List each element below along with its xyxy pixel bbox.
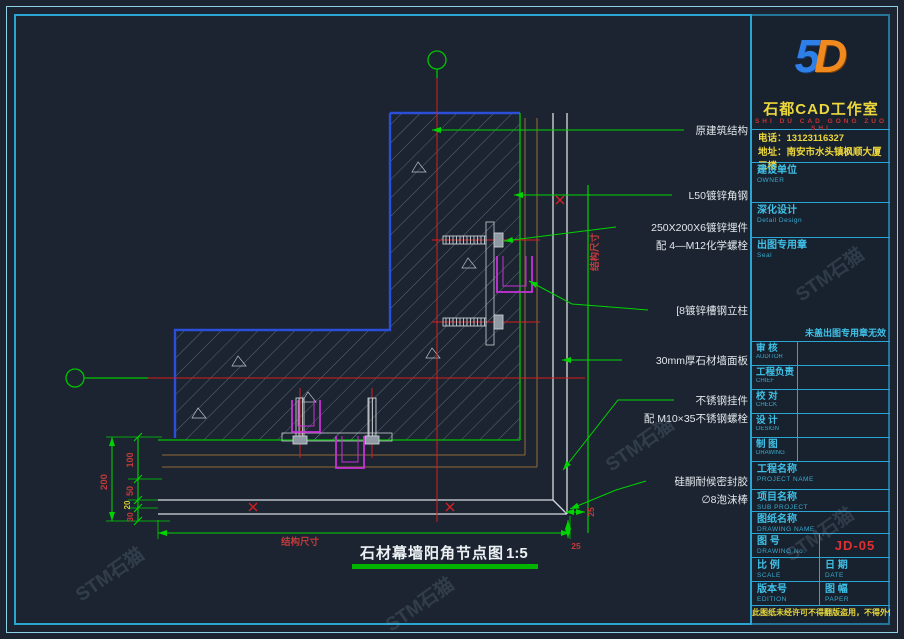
owner-label: 建设单位	[757, 165, 797, 176]
title-underline	[352, 564, 538, 569]
drawing-scale: 1:5	[506, 545, 528, 562]
phone-line: 电话：13123116327	[758, 132, 890, 146]
dim-note-horizontal: 结构尺寸	[280, 536, 320, 548]
structure-hatch-region	[175, 113, 520, 440]
edition-label: 版本号	[757, 584, 787, 595]
annotation-labels: 原建筑结构 L50镀锌角钢 250X200X6镀锌埋件 配 4—M12化学螺栓 …	[644, 124, 749, 506]
drawing-title-group: 石材幕墙阳角节点图 1:5	[352, 544, 538, 569]
label-original-structure: 原建筑结构	[696, 124, 749, 137]
drawing-name-section: 图纸名称DRAWING NAME	[752, 512, 890, 534]
drawing-canvas: 200 100 50 20 30 25 25 结构尺寸 结构尺寸 原建筑结构 L…	[0, 0, 750, 639]
subproject-section: 项目名称SUB PROJECT	[752, 490, 890, 512]
project-sub: PROJECT NAME	[757, 475, 814, 485]
dim-50: 50	[125, 486, 135, 496]
seal-sub: Seal	[757, 251, 807, 261]
check-sub: CHECK	[756, 402, 797, 408]
label-foam-rod: ∅8泡沫棒	[702, 493, 749, 506]
dim-100: 100	[125, 452, 135, 467]
design-label: 深化设计	[757, 205, 797, 216]
dim-corner-a: 25	[586, 507, 596, 517]
design-person-label: 设 计	[756, 416, 797, 426]
title-block: 5D 石都CAD工作室 SHI DU CAD GONG ZUO SHI 电话：1…	[750, 14, 890, 625]
drawing-name-label: 图纸名称	[757, 514, 797, 525]
cad-drawing-window: 200 100 50 20 30 25 25 结构尺寸 结构尺寸 原建筑结构 L…	[0, 0, 904, 639]
label-angle-steel: L50镀锌角钢	[688, 189, 748, 202]
drawing-no-sub: DRAWING No.	[757, 547, 806, 557]
paper-sub: PAPER	[825, 595, 849, 605]
edition-paper-row: 版本号EDITION 图 幅PAPER	[752, 582, 890, 606]
paper-label: 图 幅	[825, 584, 848, 595]
studio-name: 石都CAD工作室	[752, 98, 890, 118]
drawing-number-value: JD-05	[820, 538, 890, 553]
chief-sub: CHIEF	[756, 378, 797, 384]
design-person-sub: DESIGN	[756, 426, 797, 432]
label-embed-plate: 250X200X6镀锌埋件	[651, 221, 748, 234]
scale-date-row: 比 例SCALE 日 期DATE	[752, 558, 890, 582]
chief-label: 工程负责	[756, 368, 797, 378]
logo-section: 5D	[752, 14, 890, 98]
table-row: 工程负责CHIEF	[752, 366, 890, 390]
table-row: 校 对CHECK	[752, 390, 890, 414]
label-stone-panel: 30mm厚石材墙面板	[656, 354, 749, 367]
scale-label: 比 例	[757, 560, 780, 571]
project-label: 工程名称	[757, 464, 797, 475]
owner-section: 建设单位OWNER	[752, 163, 890, 203]
studio-logo: 5D	[795, 33, 848, 79]
date-sub: DATE	[825, 571, 848, 581]
table-row: 审 核AUDITOR	[752, 342, 890, 366]
studio-pinyin: SHI DU CAD GONG ZUO SHI	[752, 118, 890, 130]
dim-note-vertical: 结构尺寸	[589, 233, 601, 273]
drafter-label: 制 图	[756, 440, 797, 450]
auditor-sub: AUDITOR	[756, 354, 797, 360]
label-sealant: 硅酮耐候密封胶	[675, 475, 749, 488]
drafter-sub: DRAWING	[756, 450, 797, 456]
edition-sub: EDITION	[757, 595, 787, 605]
drawing-no-label: 图 号	[757, 536, 780, 547]
contact-section: 电话：13123116327 地址：南安市水头镇枫顺大厦三楼	[752, 130, 890, 163]
dim-20: 20	[123, 500, 132, 509]
disclaimer: 此图纸未经许可不得翻版盗用，不得外传。	[752, 606, 890, 621]
seal-section: 出图专用章Seal 未盖出图专用章无效	[752, 238, 890, 342]
table-row: 制 图DRAWING	[752, 438, 890, 461]
seal-note: 未盖出图专用章无效	[805, 326, 886, 339]
check-label: 校 对	[756, 392, 797, 402]
label-ss-hanger: 不锈钢挂件	[696, 394, 749, 407]
design-sub: Detail Design	[757, 216, 802, 226]
auditor-label: 审 核	[756, 344, 797, 354]
table-row: 设 计DESIGN	[752, 414, 890, 438]
personnel-table: 审 核AUDITOR 工程负责CHIEF 校 对CHECK 设 计DESIGN …	[752, 342, 890, 462]
dim-corner-b: 25	[571, 541, 581, 551]
design-section: 深化设计Detail Design	[752, 203, 890, 238]
drawing-title: 石材幕墙阳角节点图	[359, 544, 504, 562]
structure-face-lines	[158, 113, 588, 533]
label-embed-plate-bolts: 配 4—M12化学螺栓	[656, 239, 749, 252]
label-ss-hanger-bolts: 配 M10×35不锈钢螺栓	[644, 412, 749, 425]
logo-d: D	[814, 30, 847, 82]
owner-sub: OWNER	[757, 176, 797, 186]
label-channel-column: [8镀锌槽钢立柱	[676, 304, 748, 317]
date-label: 日 期	[825, 560, 848, 571]
project-name-section: 工程名称PROJECT NAME	[752, 462, 890, 490]
dim-30: 30	[125, 512, 135, 522]
dim-overall: 200	[99, 474, 110, 490]
drawing-number-row: 图 号DRAWING No. JD-05	[752, 534, 890, 558]
scale-sub: SCALE	[757, 571, 781, 581]
subproject-label: 项目名称	[757, 492, 797, 503]
seal-label: 出图专用章	[757, 240, 807, 251]
